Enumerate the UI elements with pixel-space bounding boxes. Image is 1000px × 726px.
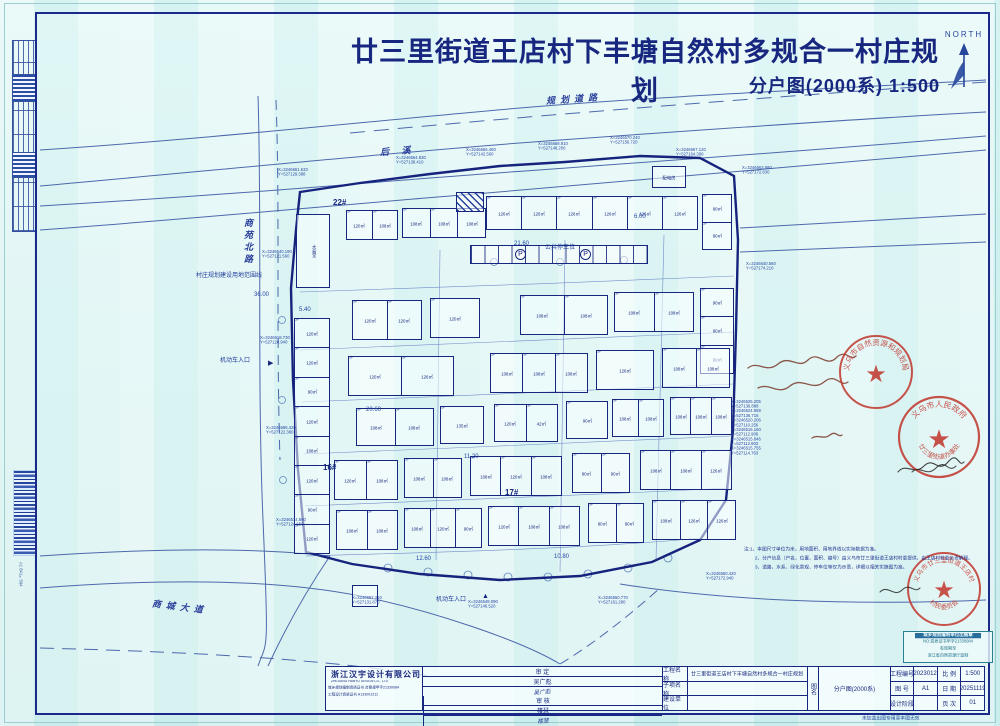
plot-cell: 3F108㎡ <box>638 400 664 436</box>
title-block: 浙江汉宇设计有限公司 ZHEJIANG HANYU DESIGN CO., LT… <box>325 666 985 711</box>
info-cell: C2023012-2 <box>913 667 937 681</box>
plot-cell: 3F126㎡ <box>662 197 697 229</box>
plot: 3F126㎡3F126㎡3F126㎡3F126㎡3F126㎡3F126㎡ <box>486 196 698 230</box>
plot-cell: 3F108㎡ <box>367 511 398 549</box>
entrance-arrow-icon: ▶ <box>268 352 273 370</box>
block-number: 22# <box>333 198 346 207</box>
coordinate-callout: X=3246670.240Y=527156.720 <box>610 136 653 149</box>
plot: 3F108㎡3F108㎡3F108㎡ <box>402 208 486 238</box>
plot-cell: 3F108㎡ <box>491 354 522 392</box>
plot: 3F90㎡3F90㎡ <box>572 453 630 493</box>
parking-icon: P <box>580 249 591 260</box>
plot-cell: 3F120㎡ <box>347 211 372 239</box>
plot-cell: 3F108㎡ <box>641 451 670 489</box>
sheet-name-value: 分户图(2000系) <box>834 684 875 693</box>
road-label: 商城大道 <box>151 597 208 617</box>
plot-cell: 3F126㎡ <box>592 197 627 229</box>
info-cell: 日 期 <box>937 682 961 696</box>
plot: 配电房 <box>652 166 686 188</box>
dimension-label: 11.20 <box>464 445 479 463</box>
plot-cell: 3F108㎡ <box>555 354 587 392</box>
plot-cell: 3F90㎡ <box>573 454 601 492</box>
role-label: 审 核 <box>424 696 662 705</box>
plot-cell: 3F126㎡ <box>556 197 591 229</box>
plot-cell: 3F108㎡ <box>457 209 485 237</box>
drawing-sheet: A1 841×594 <box>0 0 1000 726</box>
person-name: 楼慧 <box>424 705 662 715</box>
plot: 3F126㎡ <box>596 350 654 390</box>
plot: 3F120㎡3F108㎡ <box>346 210 398 240</box>
block-number: 16# <box>323 463 336 472</box>
company-name: 浙江汉宇设计有限公司 <box>331 669 435 680</box>
plot-cell: 3F108㎡ <box>521 296 564 334</box>
parking-label: 公共停车位 <box>545 236 575 254</box>
plot-cell: 3F90㎡ <box>616 504 644 542</box>
official-stamps: ★ ★ ★ 义乌市自然资源和规划局 义乌市人民政府 廿三里街道办事处 义乌市廿三… <box>820 330 996 630</box>
info-row: 工程编号C2023012-2比 例1:500 <box>891 667 984 681</box>
plot-cell: 3F90㎡ <box>295 377 329 406</box>
plot-cell: 3F90㎡ <box>567 402 607 438</box>
plot-cell: 3F126㎡ <box>597 351 653 389</box>
signature-column: 审 核楼慧楼慧 <box>423 696 662 725</box>
coordinate-callout: X=3246552.310Y=527131.870 <box>352 596 395 609</box>
dimension-label: 21.60 <box>514 232 529 250</box>
plot-cell: 3F42㎡ <box>526 405 558 441</box>
info-cell: 工程编号 <box>891 667 914 681</box>
parking-icon: P <box>515 249 526 260</box>
plot-cell: 3F135㎡ <box>441 407 483 443</box>
boundary-label: 村庄规划建设用地范围线 <box>196 264 262 282</box>
plot-cell: 3F108㎡ <box>531 457 561 495</box>
plot-cell: 3F120㎡ <box>430 509 456 547</box>
note-line: 2、分户信息（户名、位置、面积、编号）由义乌市廿三里街道王店村村委提供，由王店村… <box>744 554 939 561</box>
signature-column: 审 定吴广彪吴广彪 <box>423 667 662 696</box>
coordinate-callout: X=3246663.980Y=527172.830 <box>742 166 785 179</box>
plot: 3F120㎡3F120㎡ <box>352 300 422 340</box>
coordinate-callout: X=3246618.730Y=527120.940 <box>260 336 303 349</box>
plot-cell: 3F108㎡ <box>613 400 638 436</box>
plot: 3F120㎡3F42㎡ <box>494 404 558 442</box>
plan-notes: 注:1、本图尺寸单位为米，用地面积、用地界线以实际数据为准。2、分户信息（户名、… <box>744 545 994 572</box>
sheet-name-cell: 分户图(2000系) <box>818 667 889 710</box>
plot-cell: 3F108㎡ <box>430 209 458 237</box>
person-signature: 吴广彪 <box>423 686 662 696</box>
coordinate-callout: X=3246640.190Y=527121.560 <box>262 250 305 263</box>
plot-cell: 3F108㎡ <box>615 293 654 331</box>
project-row-labels: 工程名称 子项名称 建设单位 <box>662 667 687 710</box>
plot-cell: 3F108㎡ <box>433 459 462 497</box>
plot-cell: 3F120㎡ <box>353 301 387 339</box>
plot-cell: 3F120㎡ <box>431 299 479 337</box>
certification-stamp: 城乡规划编制单位出图章 NO:资质证书甲字21330084 有效期至 浙江省自然… <box>903 631 993 663</box>
plot: 3F108㎡3F108㎡ <box>520 295 608 335</box>
svg-text:★: ★ <box>933 577 955 604</box>
coordinate-callout: X=3246668.910Y=527148.200 <box>538 142 581 155</box>
plot-cell: 3F108㎡ <box>372 211 398 239</box>
coordinate-callout: X=3246661.633Y=527129.388 <box>278 168 321 181</box>
plot-cell: 3F108㎡ <box>671 398 690 434</box>
plot-cell: 3F90㎡ <box>703 195 731 222</box>
client-label: 建设单位 <box>663 695 687 710</box>
company-name-en: ZHEJIANG HANYU DESIGN CO., LTD <box>331 680 388 683</box>
sheet-name-label: 图名 <box>809 683 818 695</box>
plot-cell: 3F90㎡ <box>701 289 733 316</box>
plot: 3F90㎡3F90㎡ <box>588 503 644 543</box>
info-cell: 20251119 <box>960 682 984 696</box>
coordinate-callout: X=3246550.770Y=527161.280 <box>598 596 641 609</box>
plot: 3F108㎡3F108㎡ <box>612 399 664 437</box>
company-cell: 浙江汉宇设计有限公司 ZHEJIANG HANYU DESIGN CO., LT… <box>326 667 422 710</box>
plot-cell: 3F108㎡ <box>405 459 433 497</box>
signature-columns: 审 定吴广彪吴广彪审 核楼慧楼慧校 对石位石位项目负责金飞霞金飞霞专业负责金飞霞… <box>422 667 662 710</box>
drawing-info-table: 工程编号C2023012-2比 例1:500图 号A1日 期20251119设计… <box>890 667 984 710</box>
subproject-value <box>688 681 807 696</box>
dimension-label: 20.60 <box>366 398 381 416</box>
plot-cell: 3F120㎡ <box>387 301 422 339</box>
plot-cell: 3F108㎡ <box>564 296 608 334</box>
plot: 3F90㎡ <box>566 401 608 439</box>
project-row-values: 廿三里街道王店村下丰塘自然村多规合一村庄规划 <box>687 667 807 710</box>
subproject-label: 子项名称 <box>663 681 687 696</box>
dimension-label: 10.80 <box>554 545 569 563</box>
plot-cell: 3F90㎡ <box>601 454 630 492</box>
info-cell: 01 <box>960 696 984 710</box>
plot-cell: 3F90㎡ <box>455 509 481 547</box>
sheet-name-label-cell: 图名 <box>807 667 818 710</box>
plot: 3F108㎡3F108㎡ <box>614 292 694 332</box>
coordinate-callout: X=3246596.420Y=527122.380 <box>266 426 309 439</box>
plot-cell: 3F120㎡ <box>295 347 329 376</box>
dimension-label: 5.40 <box>299 298 311 316</box>
project-name-label: 工程名称 <box>663 667 687 681</box>
plot-cell: 3F108㎡ <box>405 509 430 547</box>
plot-cell: 3F120㎡ <box>349 357 401 395</box>
dimension-label: 12.60 <box>416 547 431 565</box>
plot-cell: 配电房 <box>653 167 685 187</box>
coordinate-callout: X=3246666.450Y=527142.560 <box>466 148 509 161</box>
note-line: 注:1、本图尺寸单位为米，用地面积、用地界线以实际数据为准。 <box>744 545 939 552</box>
info-row: 设计阶段页 次01 <box>891 695 984 710</box>
info-cell: 页 次 <box>937 696 961 710</box>
block-number: 17# <box>505 488 518 497</box>
plot: 3F120㎡ <box>430 298 480 338</box>
plot-cell: 3F108㎡ <box>653 501 680 539</box>
coordinate-callout: X=3246548.090Y=527146.520 <box>468 600 511 613</box>
plot-cell: 3F108㎡ <box>549 507 579 545</box>
stamp-star-icon: ★ <box>865 361 887 388</box>
plot: 3F120㎡3F108㎡3F108㎡ <box>488 506 580 546</box>
plot-cell: 3F108㎡ <box>295 436 329 465</box>
plot-cell: 3F120㎡ <box>495 405 526 441</box>
plot-cell: 3F120㎡ <box>335 461 366 499</box>
plot: 3F108㎡3F108㎡3F108㎡ <box>490 353 588 393</box>
info-cell: 比 例 <box>937 667 961 681</box>
road-label: 规划道路 <box>546 90 603 107</box>
plot-cell: 3F108㎡ <box>522 354 554 392</box>
info-cell <box>913 696 937 710</box>
info-cell: 设计阶段 <box>891 696 914 710</box>
plot-cell: 3F126㎡ <box>521 197 556 229</box>
dimension-label: 6.00 <box>634 205 646 223</box>
coordinate-callout: X=3246667.120Y=527164.390 <box>676 148 719 161</box>
coordinate-callout: X=3246574.860Y=527124.650 <box>276 518 319 531</box>
plot: 3F108㎡3F120㎡3F90㎡ <box>404 508 482 548</box>
plot-cell: 3F90㎡ <box>589 504 616 542</box>
invalid-without-stamp-note: 未加盖出图专用章本图无效 <box>862 714 974 721</box>
plot-cell: 3F120㎡ <box>489 507 518 545</box>
note-line: 3、道路、水系、绿化景观、停车位等仅为示意，详细以相关实施图为准。 <box>744 563 939 570</box>
plot <box>456 192 484 212</box>
plot-cell: 3F108㎡ <box>403 209 430 237</box>
info-cell: 图 号 <box>891 682 914 696</box>
project-name-value: 廿三里街道王店村下丰塘自然村多规合一村庄规划 <box>691 670 803 678</box>
plot-cell: 3F126㎡ <box>487 197 521 229</box>
info-row: 图 号A1日 期20251119 <box>891 681 984 696</box>
plot-cell: 3F108㎡ <box>670 451 700 489</box>
plot: 3F108㎡3F108㎡ <box>336 510 398 550</box>
plot-cell: 3F108㎡ <box>663 349 696 387</box>
person-signature: 楼慧 <box>424 715 662 725</box>
entrance-label: 机动车入口 <box>436 588 466 606</box>
plot-cell: 3F108㎡ <box>395 409 434 445</box>
cert-line-4: 浙江省自然资源厅监制 <box>918 654 978 659</box>
plot-cell: 3F90㎡ <box>703 222 731 250</box>
person-name: 吴广彪 <box>423 676 662 686</box>
plot-cell: 3F108㎡ <box>366 461 398 499</box>
road-label: 商苑北路 <box>242 218 255 266</box>
info-cell: 1:500 <box>960 667 984 681</box>
info-cell: A1 <box>913 682 937 696</box>
plot: 3F135㎡ <box>440 406 484 444</box>
coordinate-callout: X=3246664.830Y=527138.410 <box>396 156 439 169</box>
company-cert-2: 工程设计资质证书 A133001211 <box>328 693 383 697</box>
plot: 3F108㎡3F108㎡ <box>404 458 462 498</box>
company-cert-1: 城乡规划编制资质证书 合登规甲字21330084 <box>328 686 383 690</box>
cert-line-2: NO:资质证书甲字21330084 <box>918 640 978 645</box>
plot-cell: 3F108㎡ <box>337 511 367 549</box>
plot: 3F120㎡3F108㎡ <box>334 460 398 500</box>
coordinate-callout: X=3246560.420Y=527172.940 <box>706 572 749 585</box>
plot: 3F90㎡3F90㎡ <box>702 194 732 250</box>
svg-text:★: ★ <box>927 424 950 454</box>
plot-cell: 3F108㎡ <box>654 293 694 331</box>
cert-line-1: 城乡规划编制单位出图章 <box>915 633 981 638</box>
plot: 3F120㎡3F126㎡ <box>348 356 454 396</box>
plot-cell: 3F108㎡ <box>518 507 548 545</box>
role-label: 审 定 <box>423 667 662 676</box>
cert-line-3: 有效期至 <box>918 647 978 652</box>
plot-cell: 3F126㎡ <box>401 357 454 395</box>
dimension-label: 36.00 <box>254 283 269 301</box>
coordinate-callout: X=3246640.560Y=527174.210 <box>746 262 789 275</box>
client-value <box>688 695 807 710</box>
entrance-label: 机动车入口 <box>220 349 250 367</box>
